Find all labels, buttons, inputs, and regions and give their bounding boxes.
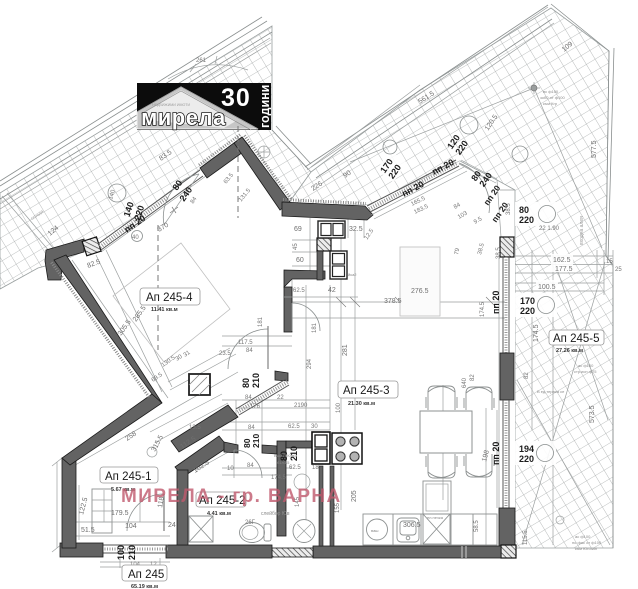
svg-text:174.5: 174.5 xyxy=(271,475,287,481)
svg-text:281: 281 xyxy=(342,344,349,356)
svg-text:294: 294 xyxy=(307,358,313,369)
svg-text:йка2: йка2 xyxy=(348,272,357,277)
svg-text:4.41 кв.м: 4.41 кв.м xyxy=(207,511,231,517)
svg-text:378.5: 378.5 xyxy=(384,298,402,305)
svg-text:23.5: 23.5 xyxy=(219,351,231,357)
svg-text:174.5: 174.5 xyxy=(533,324,540,342)
svg-text:24: 24 xyxy=(168,522,176,529)
svg-text:194: 194 xyxy=(519,444,534,454)
svg-text:100: 100 xyxy=(116,545,126,560)
svg-text:176: 176 xyxy=(250,404,261,410)
svg-text:179.5: 179.5 xyxy=(111,510,129,517)
svg-text:100: 100 xyxy=(336,402,342,413)
svg-text:Ап 245-5: Ап 245-5 xyxy=(553,333,600,345)
svg-text:слейбор Юв: слейбор Юв xyxy=(261,510,290,517)
svg-text:115.5: 115.5 xyxy=(523,530,529,545)
svg-text:22: 22 xyxy=(277,395,284,401)
svg-text:30: 30 xyxy=(311,424,318,430)
svg-text:2190: 2190 xyxy=(294,403,308,409)
svg-text:25: 25 xyxy=(615,267,622,273)
svg-text:58.5: 58.5 xyxy=(474,520,480,532)
svg-text:38.5: 38.5 xyxy=(506,203,512,215)
svg-text:306.5: 306.5 xyxy=(403,522,421,529)
svg-text:261: 261 xyxy=(196,58,207,64)
svg-text:82: 82 xyxy=(524,372,530,379)
svg-text:84: 84 xyxy=(247,463,254,469)
svg-text:205: 205 xyxy=(351,490,358,502)
svg-text:18: 18 xyxy=(312,465,319,471)
svg-text:80: 80 xyxy=(241,378,251,388)
svg-text:220: 220 xyxy=(519,454,534,464)
svg-text:30: 30 xyxy=(221,84,251,112)
svg-text:170: 170 xyxy=(520,296,535,306)
svg-text:42: 42 xyxy=(328,287,336,294)
svg-text:входна алея: входна алея xyxy=(579,216,585,245)
svg-text:Ап 245-1: Ап 245-1 xyxy=(105,471,152,483)
svg-text:пп 20: пп 20 xyxy=(491,291,501,314)
svg-text:100.5: 100.5 xyxy=(538,284,556,291)
svg-text:162.5: 162.5 xyxy=(553,257,571,264)
svg-text:80: 80 xyxy=(519,205,529,215)
svg-text:32.5: 32.5 xyxy=(349,226,363,233)
svg-text:84: 84 xyxy=(246,348,253,354)
svg-text:104: 104 xyxy=(125,523,137,530)
svg-text:577.5: 577.5 xyxy=(591,140,598,158)
svg-text:ас ф100: ас ф100 xyxy=(578,363,594,368)
svg-text:69: 69 xyxy=(294,226,302,233)
svg-text:174.5: 174.5 xyxy=(480,301,486,317)
svg-text:22 1.90: 22 1.90 xyxy=(539,226,560,232)
svg-text:45: 45 xyxy=(293,243,299,250)
svg-text:210: 210 xyxy=(251,373,261,388)
svg-text:51.5: 51.5 xyxy=(81,527,95,534)
svg-text:27.26 кв.м: 27.26 кв.м xyxy=(556,348,583,354)
svg-text:21.30 кв.м: 21.30 кв.м xyxy=(348,401,375,407)
svg-text:276.5: 276.5 xyxy=(411,288,429,295)
svg-text:Ап 245-3: Ап 245-3 xyxy=(343,385,390,397)
svg-text:82: 82 xyxy=(470,374,476,381)
svg-text:181: 181 xyxy=(258,316,264,327)
svg-text:210: 210 xyxy=(251,434,261,448)
svg-text:84: 84 xyxy=(248,425,255,431)
svg-text:26Г: 26Г xyxy=(245,520,256,526)
svg-text:ел.печка: ел.печка xyxy=(427,515,444,520)
svg-text:62.5: 62.5 xyxy=(288,424,300,430)
svg-text:ваш: ваш xyxy=(371,528,379,533)
svg-text:60: 60 xyxy=(296,257,304,264)
svg-text:62.5: 62.5 xyxy=(289,465,301,471)
svg-text:Ап 245-4: Ап 245-4 xyxy=(146,292,193,304)
svg-text:640: 640 xyxy=(462,377,468,388)
svg-text:Ап 245: Ап 245 xyxy=(128,569,164,581)
svg-text:62.5: 62.5 xyxy=(293,288,305,294)
svg-text:пп 20: пп 20 xyxy=(491,442,501,465)
svg-text:вс ф100: вс ф100 xyxy=(543,89,559,94)
svg-text:117.5: 117.5 xyxy=(238,340,253,346)
svg-text:11.41 кв.м: 11.41 кв.м xyxy=(151,307,178,313)
svg-text:МИРЕЛА - гр. ВАРНА: МИРЕЛА - гр. ВАРНА xyxy=(121,486,342,507)
svg-text:38.5: 38.5 xyxy=(496,247,502,259)
svg-text:220: 220 xyxy=(519,215,534,225)
svg-text:В ед.тераса се: В ед.тераса се xyxy=(537,389,565,394)
svg-text:години: години xyxy=(258,85,272,128)
svg-text:181: 181 xyxy=(312,322,318,333)
svg-text:65.19 кв.м: 65.19 кв.м xyxy=(131,584,158,589)
svg-text:стр.исп ф75: стр.исп ф75 xyxy=(574,369,597,374)
svg-text:по фас от ф100: по фас от ф100 xyxy=(572,540,602,545)
svg-text:177.5: 177.5 xyxy=(555,266,573,273)
svg-text:ВшЗ.П Кла5: ВшЗ.П Кла5 xyxy=(274,453,297,458)
svg-text:зоб0 от ф100: зоб0 от ф100 xyxy=(540,95,565,100)
svg-text:към Югозап: към Югозап xyxy=(575,546,597,551)
svg-text:573.5: 573.5 xyxy=(589,405,596,423)
svg-text:15: 15 xyxy=(606,259,613,265)
svg-text:13.5: 13.5 xyxy=(189,425,201,431)
svg-text:84: 84 xyxy=(245,395,252,401)
svg-text:10: 10 xyxy=(227,466,234,472)
svg-text:ас ф100: ас ф100 xyxy=(575,534,591,539)
svg-text:б1л3.5: б1л3.5 xyxy=(277,460,290,465)
svg-text:220: 220 xyxy=(520,306,535,316)
svg-text:210: 210 xyxy=(127,545,137,560)
svg-text:мирела: мирела xyxy=(141,105,226,130)
svg-text:към Кгр: към Кгр xyxy=(543,101,558,106)
svg-text:40: 40 xyxy=(132,235,139,241)
